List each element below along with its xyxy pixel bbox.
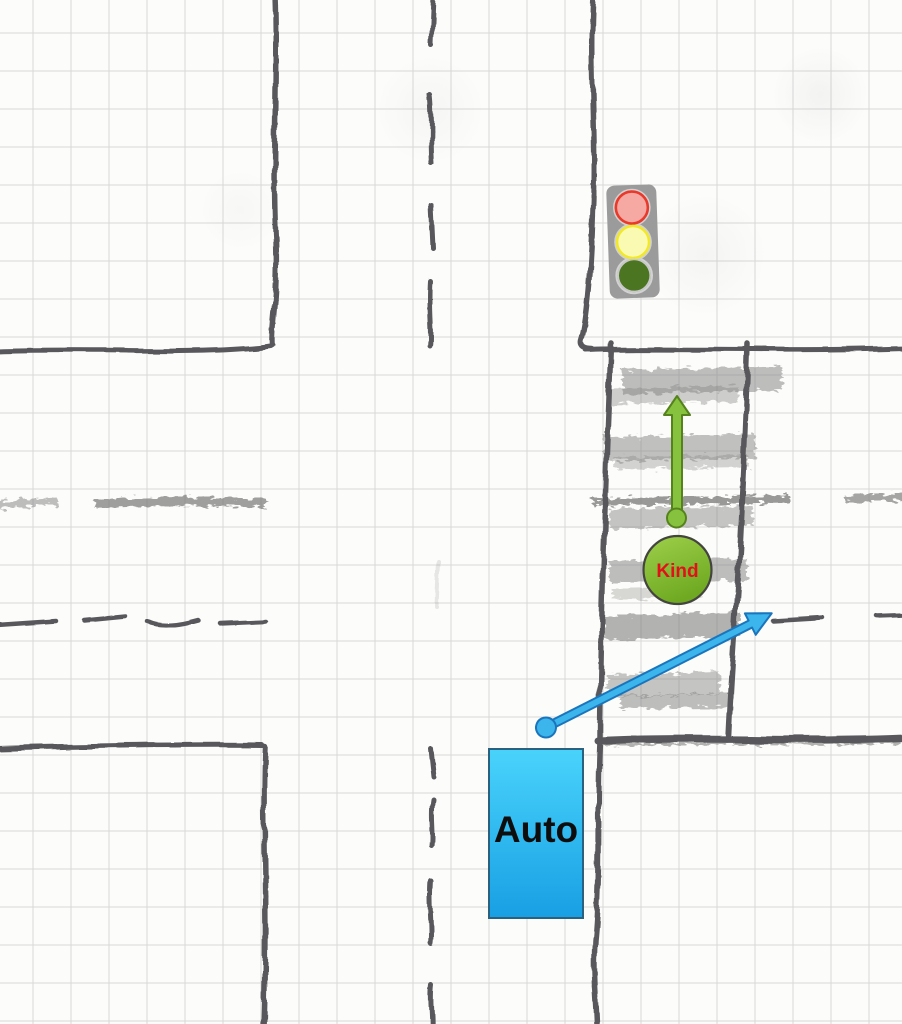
center-dash (432, 799, 433, 846)
center-dash (431, 205, 433, 248)
crosswalk-stripe (620, 700, 732, 702)
traffic-light-yellow (616, 225, 649, 258)
pencil-road-lines (0, 0, 902, 1024)
road-edge-top-left-horizontal (0, 345, 273, 351)
center-dash (430, 95, 432, 164)
crosswalk-stripes (0, 378, 902, 744)
road-edge-top-right-vertical (581, 0, 594, 349)
child-marker[interactable]: Kind (644, 536, 712, 604)
center-dash (430, 881, 431, 944)
traffic-light[interactable] (606, 184, 660, 299)
center-dash (431, 749, 434, 777)
lane-mark-right (845, 497, 902, 499)
lane-dash-left (221, 622, 266, 624)
traffic-light-red (615, 191, 648, 224)
lane-dash-right (773, 618, 823, 621)
crosswalk-stripe (608, 394, 738, 396)
road-edge-top-left-vertical (272, 0, 276, 343)
crosswalk-stripe (592, 499, 790, 502)
lane-mark-left (95, 502, 266, 504)
road-edge-bottom-left-vertical (264, 747, 265, 1024)
lane-dash-left (148, 620, 198, 625)
road-edge-bottom-left-horizontal (0, 745, 262, 748)
green-arrow-start-dot (667, 509, 686, 528)
lane-dash-left (0, 621, 56, 625)
lane-dash-right (878, 616, 902, 617)
crosswalk-right-line (728, 344, 748, 738)
traffic-sketch-svg: Kind Auto (0, 0, 902, 1024)
center-dash (429, 281, 430, 346)
center-dash-faint (436, 561, 438, 606)
center-dash (431, 986, 432, 1024)
car-marker[interactable]: Auto (489, 749, 583, 918)
crosswalk-bottom-line (598, 738, 902, 741)
lane-mark-left (0, 501, 57, 505)
crosswalk-stripe (604, 624, 740, 628)
road-edge-top-right-horizontal (586, 348, 902, 350)
child-label: Kind (656, 561, 698, 582)
sketch-canvas: Kind Auto (0, 0, 902, 1024)
center-dash (431, 0, 433, 45)
crosswalk-stripe (622, 378, 782, 382)
car-label: Auto (494, 809, 578, 850)
traffic-light-green (618, 259, 651, 292)
lane-dash-left (85, 617, 126, 621)
